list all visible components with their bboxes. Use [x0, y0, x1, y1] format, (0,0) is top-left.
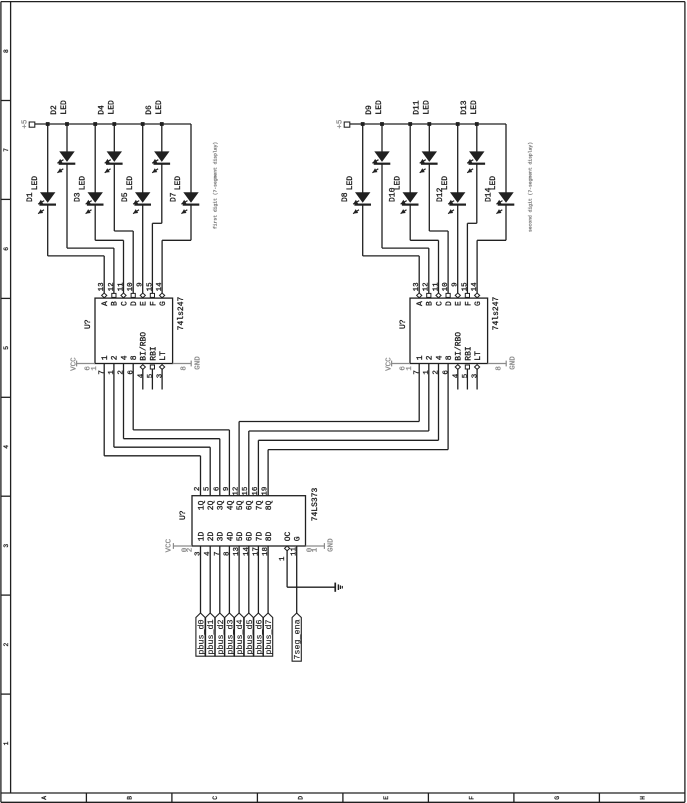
svg-text:first digit (7-segment display: first digit (7-segment display): [213, 142, 219, 229]
svg-text:4: 4: [452, 373, 460, 378]
svg-text:C: C: [435, 301, 444, 306]
svg-text:D3: D3: [74, 192, 83, 202]
svg-text:74LS373: 74LS373: [311, 487, 320, 521]
svg-text:E: E: [455, 301, 464, 306]
svg-text:GND: GND: [194, 356, 202, 370]
svg-text:7D: 7D: [255, 531, 264, 541]
svg-text:8: 8: [180, 366, 188, 371]
svg-text:G: G: [294, 536, 303, 541]
svg-text:13: 13: [98, 282, 106, 292]
svg-text:6: 6: [442, 370, 450, 375]
svg-text:4: 4: [3, 445, 10, 449]
svg-text:D11: D11: [412, 100, 421, 115]
svg-text:B: B: [426, 301, 435, 306]
svg-text:4: 4: [435, 355, 444, 360]
svg-text:G: G: [554, 796, 561, 800]
svg-text:12: 12: [108, 282, 116, 291]
svg-text:14: 14: [243, 546, 251, 556]
svg-text:14: 14: [471, 282, 479, 292]
svg-text:D13: D13: [460, 100, 469, 115]
svg-text:D1: D1: [26, 192, 35, 202]
svg-text:3D: 3D: [217, 531, 226, 541]
svg-text:74ls247: 74ls247: [177, 296, 186, 330]
svg-text:8: 8: [130, 355, 139, 360]
svg-text:BI/RBO: BI/RBO: [455, 332, 464, 361]
svg-text:D9: D9: [365, 105, 374, 115]
svg-text:15: 15: [146, 282, 154, 292]
svg-text:19: 19: [262, 487, 270, 496]
svg-text:6: 6: [127, 370, 135, 375]
svg-text:9: 9: [452, 282, 460, 287]
svg-text:7: 7: [413, 370, 421, 375]
svg-text:F: F: [149, 301, 158, 306]
svg-text:16: 16: [252, 486, 260, 496]
svg-text:+5: +5: [22, 119, 30, 129]
svg-text:F: F: [464, 301, 473, 306]
svg-text:6: 6: [213, 486, 221, 491]
svg-text:LED: LED: [78, 176, 87, 191]
svg-text:8Q: 8Q: [265, 500, 274, 510]
svg-text:B: B: [126, 796, 133, 800]
svg-text:H: H: [639, 796, 646, 800]
svg-text:3: 3: [157, 373, 165, 378]
svg-text:5D: 5D: [236, 531, 245, 541]
svg-text:1D: 1D: [197, 531, 206, 541]
svg-text:GND: GND: [327, 538, 335, 552]
svg-text:D: D: [445, 301, 454, 306]
svg-text:+5: +5: [337, 119, 345, 129]
svg-text:18: 18: [262, 547, 270, 556]
svg-text:9: 9: [223, 487, 231, 492]
svg-text:8: 8: [495, 366, 503, 371]
svg-text:E: E: [140, 301, 149, 306]
svg-text:LED: LED: [489, 176, 498, 191]
svg-text:D2: D2: [50, 105, 59, 115]
svg-text:1: 1: [108, 370, 116, 375]
svg-text:5: 5: [3, 346, 10, 350]
svg-text:1: 1: [101, 355, 110, 360]
svg-text:2Q: 2Q: [207, 500, 216, 510]
svg-text:14: 14: [156, 282, 164, 292]
svg-text:G: G: [474, 301, 483, 306]
svg-text:RBI: RBI: [149, 346, 158, 360]
svg-text:U?: U?: [399, 319, 408, 329]
svg-text:LED: LED: [155, 100, 164, 115]
svg-text:4: 4: [204, 551, 212, 556]
svg-text:pbus_d0: pbus_d0: [197, 619, 207, 654]
svg-text:LED: LED: [31, 176, 40, 191]
svg-text:15: 15: [461, 282, 469, 292]
svg-text:0: 0: [307, 547, 315, 552]
svg-text:VCC: VCC: [70, 357, 78, 371]
svg-text:7: 7: [3, 148, 10, 152]
svg-text:VCC: VCC: [385, 357, 393, 371]
svg-text:7: 7: [98, 370, 106, 375]
svg-text:1: 1: [3, 741, 10, 745]
svg-text:LED: LED: [126, 176, 135, 191]
svg-text:D7: D7: [169, 192, 178, 202]
svg-text:D: D: [297, 796, 304, 800]
svg-text:2: 2: [194, 487, 202, 492]
svg-text:6D: 6D: [246, 531, 255, 541]
svg-text:3: 3: [472, 373, 480, 378]
svg-text:D4: D4: [97, 105, 106, 115]
svg-text:2: 2: [433, 370, 441, 375]
svg-text:pbus_d7: pbus_d7: [264, 619, 274, 654]
svg-text:GND: GND: [509, 356, 517, 370]
svg-text:D6: D6: [145, 105, 154, 115]
svg-text:2: 2: [111, 355, 120, 360]
svg-text:G: G: [159, 301, 168, 306]
svg-text:7: 7: [214, 551, 222, 556]
svg-text:D: D: [130, 301, 139, 306]
svg-text:1Q: 1Q: [197, 500, 206, 510]
svg-text:17: 17: [252, 547, 260, 556]
svg-text:D5: D5: [121, 192, 130, 202]
svg-text:8: 8: [223, 551, 231, 556]
svg-text:F: F: [468, 796, 475, 800]
svg-text:12: 12: [233, 487, 241, 496]
svg-text:LED: LED: [107, 100, 116, 115]
svg-text:74ls247: 74ls247: [492, 296, 501, 330]
svg-text:RBI: RBI: [464, 346, 473, 360]
svg-text:BI/RBO: BI/RBO: [140, 332, 149, 361]
svg-text:B: B: [111, 301, 120, 306]
svg-text:13: 13: [233, 546, 241, 556]
svg-text:LED: LED: [174, 176, 183, 191]
svg-text:8D: 8D: [265, 531, 274, 541]
svg-text:4D: 4D: [226, 531, 235, 541]
svg-text:7seg_ena: 7seg_ena: [293, 619, 303, 659]
svg-text:LED: LED: [375, 100, 384, 115]
svg-text:4: 4: [120, 355, 129, 360]
svg-text:10: 10: [442, 282, 450, 292]
svg-text:11: 11: [432, 282, 440, 292]
svg-text:8: 8: [445, 355, 454, 360]
svg-text:U?: U?: [179, 510, 188, 520]
svg-text:LT: LT: [159, 351, 168, 361]
svg-text:2D: 2D: [207, 531, 216, 541]
svg-text:LED: LED: [393, 176, 402, 191]
svg-text:3Q: 3Q: [217, 500, 226, 510]
svg-text:LT: LT: [474, 351, 483, 361]
svg-text:8: 8: [3, 49, 10, 53]
svg-text:E: E: [383, 796, 390, 800]
svg-text:LED: LED: [346, 176, 355, 191]
svg-text:LED: LED: [60, 100, 69, 115]
svg-text:1: 1: [416, 355, 425, 360]
svg-text:9: 9: [137, 282, 145, 287]
svg-text:7Q: 7Q: [255, 500, 264, 510]
svg-text:C: C: [212, 796, 219, 800]
svg-text:2: 2: [118, 370, 126, 375]
svg-text:10: 10: [127, 282, 135, 292]
svg-text:6: 6: [85, 366, 93, 371]
svg-text:A: A: [416, 301, 425, 306]
svg-text:C: C: [120, 301, 129, 306]
svg-text:6Q: 6Q: [246, 500, 255, 510]
svg-text:U?: U?: [84, 319, 93, 329]
svg-text:D8: D8: [341, 192, 350, 202]
svg-text:1: 1: [279, 556, 287, 561]
svg-text:15: 15: [242, 486, 250, 496]
svg-text:11: 11: [291, 546, 299, 556]
svg-text:second digit (7-segment displa: second digit (7-segment display): [528, 142, 534, 232]
svg-text:A: A: [41, 796, 48, 800]
svg-text:1: 1: [423, 370, 431, 375]
svg-text:3: 3: [3, 544, 10, 548]
svg-text:4: 4: [137, 373, 145, 378]
svg-text:LED: LED: [470, 100, 479, 115]
svg-text:2: 2: [3, 642, 10, 646]
svg-text:A: A: [101, 301, 110, 306]
svg-text:5: 5: [204, 486, 212, 491]
svg-text:LED: LED: [441, 176, 450, 191]
svg-text:5: 5: [147, 373, 155, 378]
svg-text:OC: OC: [284, 531, 293, 541]
svg-text:5: 5: [462, 373, 470, 378]
svg-text:2: 2: [426, 355, 435, 360]
svg-text:4Q: 4Q: [226, 500, 235, 510]
svg-text:0: 0: [182, 547, 190, 552]
svg-text:VCC: VCC: [166, 538, 174, 552]
svg-text:pbus_d4: pbus_d4: [235, 619, 245, 654]
svg-text:6: 6: [400, 366, 408, 371]
svg-text:11: 11: [117, 282, 125, 292]
svg-text:3: 3: [195, 551, 203, 556]
svg-text:LED: LED: [422, 100, 431, 115]
svg-text:13: 13: [413, 282, 421, 292]
svg-text:12: 12: [423, 282, 431, 291]
svg-text:6: 6: [3, 247, 10, 251]
svg-text:5Q: 5Q: [236, 500, 245, 510]
